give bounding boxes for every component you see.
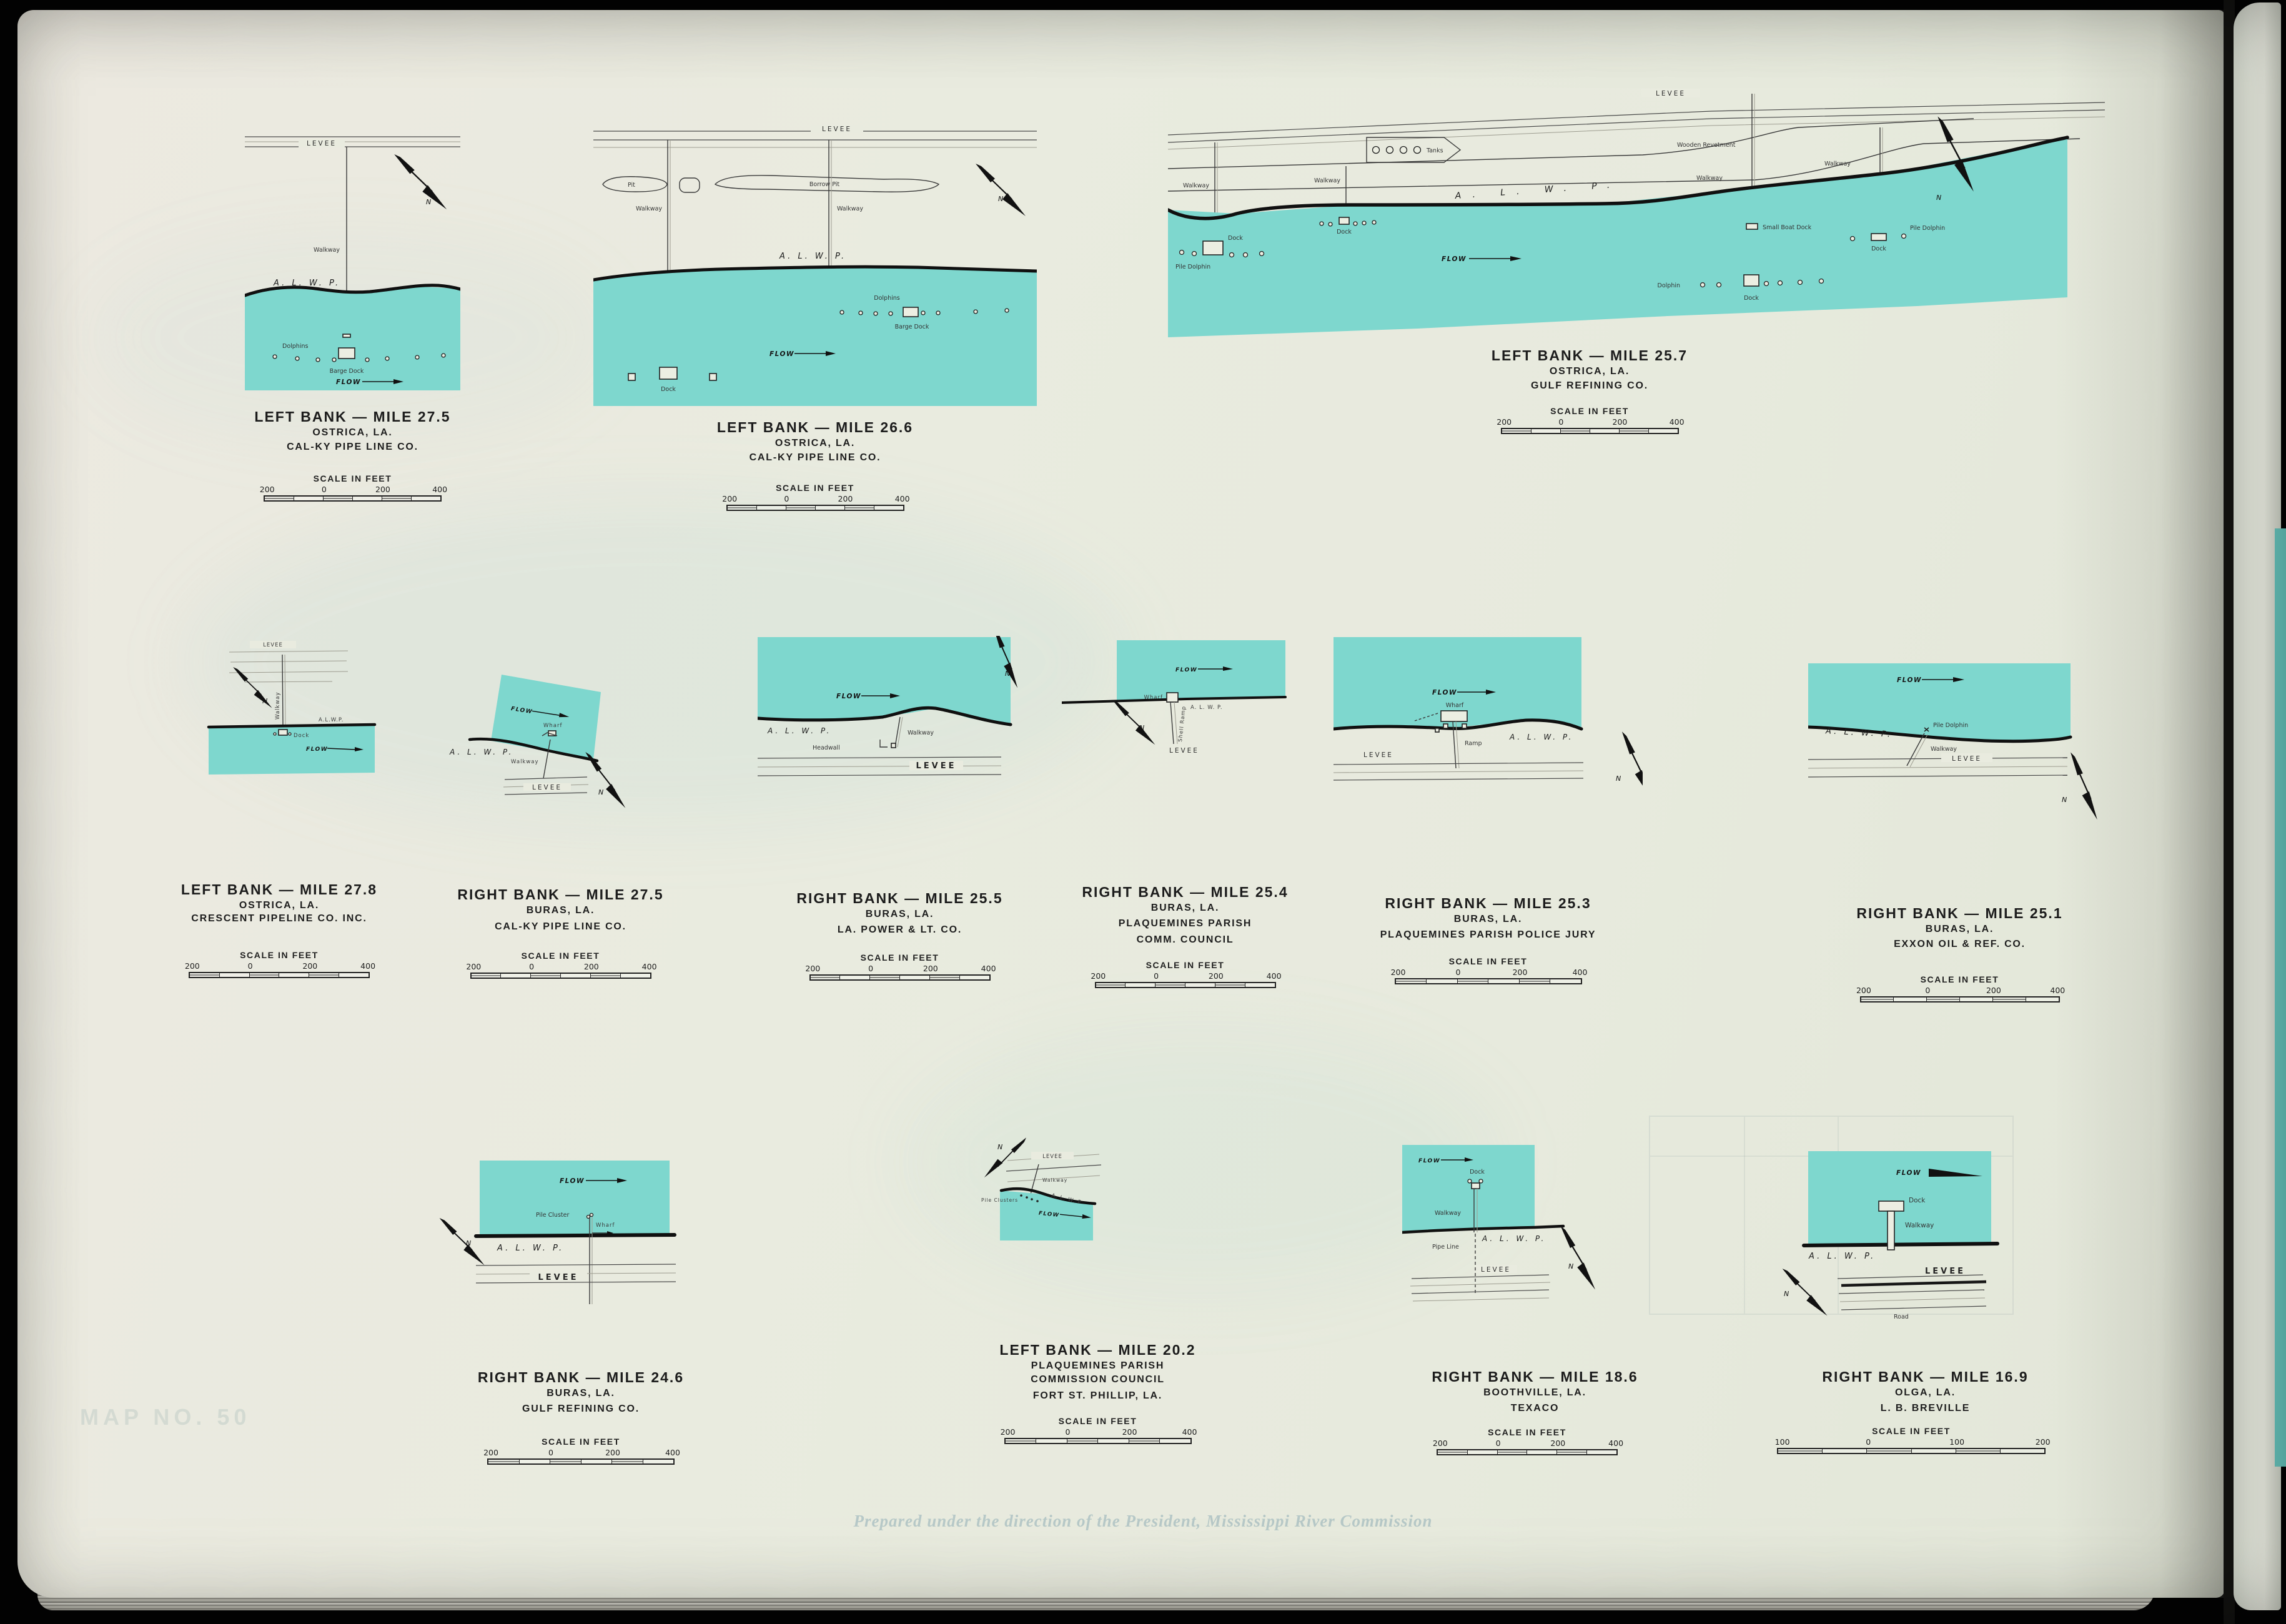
north-label: N (1139, 724, 1144, 732)
flow-label: FLOW (306, 746, 328, 753)
panel-right-bank-18-6: FLOW Dock Walkway A. L. W. P. Pipe Line … (1402, 1145, 1668, 1455)
water (1117, 640, 1285, 700)
map-drawing: LEVEE Walkway N A. L. W. P. Dolphins Bar… (245, 128, 460, 406)
map-drawing: FLOW Dock Walkway A. L. W. P. LEVEE Road… (1780, 1151, 2071, 1357)
shoreline-alwp (476, 1235, 675, 1236)
scale-block: SCALE IN FEET 2000 200400 (726, 483, 904, 511)
panel-title: RIGHT BANK — MILE 25.5 (758, 890, 1042, 906)
panel-subtitle: LA. POWER & LT. CO. (758, 924, 1042, 936)
scale-title: SCALE IN FEET (1095, 960, 1276, 970)
water (593, 267, 1037, 406)
scale-block: SCALE IN FEET 2000 200400 (1501, 406, 1679, 434)
panel-right-bank-27-5: FLOW Wharf Walkway A. L. W. P. LEVEE N R… (437, 661, 684, 979)
panel-title: RIGHT BANK — MILE 25.3 (1333, 895, 1643, 911)
north-arrow-icon (976, 164, 1026, 216)
alwp-label: A. L. W. P. (449, 748, 513, 756)
scale-block: SCALE IN FEET 2000 200400 (1095, 960, 1276, 988)
alwp-label: A. L. W. P. (779, 252, 846, 261)
panel-subtitle: EXXON OIL & REF. CO. (1808, 938, 2111, 951)
panel-title: RIGHT BANK — MILE 24.6 (437, 1369, 725, 1385)
flow-label: FLOW (1432, 689, 1457, 696)
scale-block: SCALE IN FEET 2000 200400 (809, 953, 991, 981)
dock-label: Dock (1337, 229, 1352, 235)
flow-label: FLOW (1418, 1158, 1440, 1164)
scale-block: SCALE IN FEET 2000 200400 (1395, 956, 1582, 984)
map-drawing: FLOW Pile Cluster Wharf A. L. W. P. LEVE… (437, 1161, 725, 1360)
dock (279, 730, 287, 735)
scale-title: SCALE IN FEET (1777, 1426, 2046, 1436)
map-drawing: FLOW Dock Walkway A. L. W. P. Pipe Line … (1402, 1145, 1668, 1364)
panel-title: RIGHT BANK — MILE 18.6 (1402, 1369, 1668, 1385)
alwp-label: A. L. W. P. (767, 726, 831, 735)
flow-label: FLOW (1442, 255, 1467, 263)
flow-label: FLOW (1175, 667, 1197, 673)
water (758, 637, 1011, 725)
panel-subtitle: COMMISSION COUNCIL (959, 1374, 1237, 1386)
dock-label: Dock (294, 733, 309, 739)
panel-subtitle: BOOTHVILLE, LA. (1402, 1387, 1668, 1399)
scale-bar (470, 973, 651, 979)
map-drawing: N LEVEE Walkway A. L. W. P Pile Clusters… (959, 1136, 1237, 1342)
panel-right-bank-24-6: FLOW Pile Cluster Wharf A. L. W. P. LEVE… (437, 1161, 725, 1465)
panel-right-bank-25-4: FLOW Wharf A. L. W. P. Shell Ramp N LEVE… (1062, 639, 1309, 988)
north-label: N (1784, 1290, 1789, 1298)
map-drawing: LEVEE Pit Borrow Pit Walkway Walkway N A… (593, 125, 1037, 409)
map-drawing: FLOW A. L. W. P. Pile Dolphin Walkway LE… (1808, 661, 2111, 870)
walkway-label: Walkway (636, 205, 662, 212)
dock-label: Dock (1744, 295, 1759, 302)
north-arrow-icon (394, 154, 447, 209)
levee-label: LEVEE (1925, 1267, 1966, 1276)
dock (1744, 275, 1759, 286)
pile-cluster-label: Pile Cluster (536, 1212, 569, 1219)
pile-dolphin-label: Pile Dolphin (1933, 722, 1968, 729)
panel-subtitle: PLAQUEMINES PARISH (959, 1360, 1237, 1372)
scale-title: SCALE IN FEET (1501, 406, 1679, 416)
alwp-label: A. L. W. P. (1190, 705, 1223, 711)
walkway-label: Walkway (1435, 1210, 1461, 1217)
walkway-label: Walkway (1042, 1177, 1067, 1183)
panel-title: LEFT BANK — MILE 25.7 (1483, 347, 1696, 364)
north-label: N (466, 1239, 471, 1247)
small-boat-dock (1746, 224, 1758, 229)
dolphins-label: Dolphins (282, 343, 308, 350)
panel-left-bank-20-2: N LEVEE Walkway A. L. W. P Pile Clusters… (959, 1136, 1237, 1444)
walkway-label: Walkway (837, 205, 863, 212)
north-label: N (598, 788, 603, 796)
next-page-edge (2234, 2, 2281, 1610)
book-edge-strip (2275, 528, 2286, 1467)
map-drawing: LEVEE Walkway N A.L.W.P. Dock FLOW (170, 638, 388, 873)
scale-labels: 2000 200400 (470, 962, 651, 973)
scale-bar (1095, 982, 1276, 988)
panel-title: RIGHT BANK — MILE 25.1 (1808, 905, 2111, 921)
wharf (1441, 711, 1467, 721)
scale-labels: 2000 200400 (264, 485, 442, 495)
scale-title: SCALE IN FEET (809, 953, 991, 963)
panel-right-bank-25-5: N FLOW A. L. W. P. Walkway Headwall LEVE… (758, 636, 1042, 981)
dock-label: Dock (1470, 1169, 1485, 1176)
walkway-label: Walkway (314, 247, 340, 254)
scale-title: SCALE IN FEET (726, 483, 904, 493)
scale-labels: 2000 200400 (1004, 1427, 1192, 1438)
alwp-label: A. L. W. P. (273, 279, 340, 288)
walkway-label: Walkway (908, 730, 934, 736)
north-arrow-icon (440, 1218, 485, 1265)
levee-label: LEVEE (822, 126, 852, 133)
road-label: Road (1894, 1314, 1909, 1320)
levee-label: LEVEE (538, 1273, 579, 1282)
alwp-label: A. L. W. P. (1454, 179, 1621, 201)
flow-label: FLOW (560, 1177, 585, 1185)
panel-title: LEFT BANK — MILE 20.2 (959, 1342, 1237, 1358)
scale-title: SCALE IN FEET (1860, 974, 2060, 984)
water (480, 1161, 670, 1234)
dock (1871, 234, 1886, 240)
scale-bar (1501, 428, 1679, 434)
panel-subtitle: GULF REFINING CO. (437, 1403, 725, 1415)
flow-label: FLOW (836, 693, 861, 700)
barge-dock (339, 348, 355, 359)
scale-block: SCALE IN FEET 1000 100200 (1777, 1426, 2046, 1454)
small-boat-dock-label: Small Boat Dock (1763, 224, 1812, 231)
scale-labels: 2000 200400 (1095, 971, 1276, 982)
panel-subtitle: TEXACO (1402, 1402, 1668, 1415)
panel-title: LEFT BANK — MILE 27.8 (170, 881, 388, 898)
map-drawing: FLOW Wharf Ramp A. L. W. P. LEVEE N (1333, 636, 1643, 864)
panel-subtitle: BURAS, LA. (1333, 913, 1643, 926)
map-drawing: FLOW Wharf A. L. W. P. Shell Ramp N LEVE… (1062, 639, 1309, 858)
walkway-label: Walkway (1183, 182, 1209, 189)
panel-subtitle: BURAS, LA. (1808, 923, 2111, 936)
panel-subtitle: OSTRICA, LA. (593, 437, 1037, 450)
panel-left-bank-26-6: LEVEE Pit Borrow Pit Walkway Walkway N A… (593, 125, 1037, 511)
levee-label: LEVEE (1169, 747, 1199, 755)
scale-title: SCALE IN FEET (264, 473, 442, 483)
levee-label: LEVEE (1656, 90, 1686, 97)
north-label: N (426, 198, 431, 206)
scale-labels: 2000 200400 (809, 964, 991, 974)
scale-labels: 2000 200400 (1437, 1438, 1618, 1449)
panel-subtitle: OSTRICA, LA. (1483, 365, 1696, 378)
wharf-label: Wharf (1144, 695, 1164, 701)
ramp-label: Ramp (1465, 740, 1482, 747)
wharf-label: Wharf (596, 1222, 615, 1229)
scale-block: SCALE IN FEET 2000 200400 (1437, 1427, 1618, 1455)
scale-labels: 2000 200400 (1860, 986, 2060, 996)
scale-bar (487, 1458, 675, 1465)
levee-label: LEVEE (1952, 755, 1982, 763)
panel-right-bank-16-9: FLOW Dock Walkway A. L. W. P. LEVEE Road… (1780, 1151, 2071, 1454)
panel-subtitle: CAL-KY PIPE LINE CO. (245, 441, 460, 453)
north-arrow-icon (984, 1137, 1026, 1177)
north-arrow-icon (1783, 1269, 1828, 1316)
pile-clusters-label: Pile Clusters (981, 1197, 1018, 1203)
north-arrow-icon (2051, 752, 2111, 819)
levee-label: LEVEE (307, 140, 337, 147)
alwp-label: A. L. W. P. (1509, 733, 1573, 741)
levee-label: LEVEE (1481, 1266, 1511, 1274)
scale-block: SCALE IN FEET 2000 200400 (264, 473, 442, 502)
north-arrow-icon (1604, 731, 1643, 798)
panel-right-bank-25-3: FLOW Wharf Ramp A. L. W. P. LEVEE N RIGH… (1333, 636, 1643, 984)
panel-subtitle: CRESCENT PIPELINE CO. INC. (170, 913, 388, 925)
panel-subtitle: OSTRICA, LA. (170, 899, 388, 912)
flow-label: FLOW (1896, 1169, 1921, 1177)
dolphin-label: Dolphin (1658, 282, 1680, 289)
scale-block: SCALE IN FEET 2000 200400 (470, 951, 651, 979)
alwp-label: A. L. W. P. (497, 1244, 564, 1253)
panel-left-bank-27-5: LEVEE Walkway N A. L. W. P. Dolphins Bar… (245, 128, 460, 502)
headwall-label: Headwall (813, 745, 840, 751)
dock (660, 367, 677, 379)
water (491, 675, 601, 760)
scale-block: SCALE IN FEET 2000 200400 (487, 1437, 675, 1465)
panel-subtitle: PLAQUEMINES PARISH (1062, 918, 1309, 930)
barge-dock-label: Barge Dock (330, 368, 364, 375)
walkway-label: Walkway (1314, 177, 1340, 184)
scale-labels: 2000 200400 (189, 961, 370, 972)
tanks-label: Tanks (1426, 147, 1443, 154)
dock (1203, 241, 1223, 255)
walkway-label: Walkway (1696, 175, 1723, 182)
scale-title: SCALE IN FEET (1437, 1427, 1618, 1437)
dolphins-label: Dolphins (874, 295, 899, 302)
north-label: N (998, 195, 1003, 203)
pile-dolphin-label: Pile Dolphin (1910, 225, 1945, 232)
scale-bar (1004, 1438, 1192, 1444)
scale-title: SCALE IN FEET (1004, 1416, 1192, 1426)
panel-title: RIGHT BANK — MILE 27.5 (437, 886, 684, 903)
north-label: N (262, 697, 267, 705)
north-label: N (1005, 670, 1010, 678)
panel-subtitle: COMM. COUNCIL (1062, 934, 1309, 946)
panel-subtitle: GULF REFINING CO. (1483, 380, 1696, 392)
dock-label: Dock (1228, 235, 1243, 242)
north-label: N (1616, 775, 1621, 783)
levee-label: LEVEE (916, 761, 957, 771)
panel-title: LEFT BANK — MILE 27.5 (245, 408, 460, 425)
walkway-label: Walkway (1931, 746, 1957, 753)
shoreline-alwp (1804, 1244, 1997, 1245)
alwp-label: A. L. W. P. (1808, 1252, 1876, 1261)
panel-left-bank-27-8: LEVEE Walkway N A.L.W.P. Dock FLOW LEFT … (170, 638, 388, 978)
levee-label: LEVEE (532, 784, 562, 791)
book-photo: MAP NO. 50 Prepared under the direction … (0, 0, 2286, 1624)
panel-subtitle: CAL-KY PIPE LINE CO. (593, 452, 1037, 464)
panel-title: LEFT BANK — MILE 26.6 (593, 419, 1037, 435)
walkway-label: Walkway (275, 691, 281, 720)
scale-title: SCALE IN FEET (1395, 956, 1582, 966)
wharf-label: Wharf (543, 723, 563, 729)
scale-bar (189, 972, 370, 978)
water (1808, 1151, 1991, 1244)
dock (1879, 1201, 1904, 1211)
scale-bar (1437, 1449, 1618, 1455)
scale-bar (1395, 978, 1582, 984)
panel-left-bank-25-7: LEVEE Wooden Revetment Tanks Walkway Wal… (1168, 86, 2105, 352)
levee-label: LEVEE (1042, 1154, 1062, 1160)
dock-label: Dock (1871, 245, 1886, 252)
pipe-line-label: Pipe Line (1432, 1244, 1459, 1250)
scale-labels: 2000 200400 (1395, 968, 1582, 978)
scale-bar (1777, 1448, 2046, 1454)
map-drawing: LEVEE Wooden Revetment Tanks Walkway Wal… (1168, 86, 2105, 352)
wooden-revetment-label: Wooden Revetment (1677, 142, 1736, 149)
north-label: N (997, 1143, 1002, 1151)
panel-subtitle: FORT ST. PHILLIP, LA. (959, 1390, 1237, 1402)
wharf (1167, 693, 1178, 702)
north-arrow-icon (578, 752, 632, 808)
panel-right-bank-25-1: FLOW A. L. W. P. Pile Dolphin Walkway LE… (1808, 661, 2111, 1003)
scale-labels: 2000 200400 (487, 1448, 675, 1458)
panel-subtitle: BURAS, LA. (758, 908, 1042, 921)
panel-subtitle: BURAS, LA. (1062, 902, 1309, 914)
scale-labels: 2000 200400 (726, 494, 904, 505)
north-label: N (2062, 796, 2067, 804)
headwall-outline (880, 740, 888, 747)
scale-bar (1860, 996, 2060, 1003)
pile-dolphin-label: Pile Dolphin (1175, 264, 1210, 270)
levee-label: LEVEE (1363, 751, 1393, 759)
walkway-label: Walkway (1824, 161, 1851, 167)
panel-subtitle: BURAS, LA. (437, 904, 684, 917)
dock-label: Dock (1909, 1197, 1926, 1204)
pit-label: Pit (628, 182, 635, 189)
flow-label: FLOW (336, 379, 361, 386)
barge-dock-label: Barge Dock (895, 324, 929, 330)
shell-ramp-label: Shell Ramp (1177, 706, 1187, 743)
dock-label: Dock (661, 386, 676, 393)
scale-labels: 2000 200400 (1501, 417, 1679, 428)
north-arrow-icon (1547, 1226, 1609, 1290)
north-label: N (1568, 1262, 1573, 1270)
dock (1472, 1183, 1480, 1189)
panel-title: RIGHT BANK — MILE 16.9 (1780, 1369, 2071, 1385)
levee-label: LEVEE (263, 642, 283, 648)
scale-title: SCALE IN FEET (470, 951, 651, 961)
panel-subtitle: CAL-KY PIPE LINE CO. (437, 921, 684, 933)
scale-labels: 1000 100200 (1777, 1437, 2046, 1448)
north-label: N (1936, 194, 1941, 202)
borrow-pit-label: Borrow Pit (809, 181, 840, 188)
panel-subtitle: L. B. BREVILLE (1780, 1402, 2071, 1415)
panel-subtitle: OLGA, LA. (1780, 1387, 2071, 1399)
scale-title: SCALE IN FEET (189, 950, 370, 960)
map-drawing: FLOW Wharf Walkway A. L. W. P. LEVEE N (437, 661, 684, 870)
alwp-label: A.L.W.P. (319, 717, 344, 723)
scale-title: SCALE IN FEET (487, 1437, 675, 1447)
wharf-label: Wharf (1446, 702, 1464, 709)
panel-subtitle: PLAQUEMINES PARISH POLICE JURY (1333, 929, 1643, 941)
scale-block: SCALE IN FEET 2000 200400 (1860, 974, 2060, 1003)
panel-subtitle: BURAS, LA. (437, 1387, 725, 1400)
alwp-label: A. L. W. P. (1482, 1234, 1546, 1243)
panel-subtitle: OSTRICA, LA. (245, 427, 460, 439)
scale-bar (809, 974, 991, 981)
scale-bar (726, 505, 904, 511)
north-arrow-icon (1112, 700, 1155, 745)
scale-block: SCALE IN FEET 2000 200400 (1004, 1416, 1192, 1444)
map-drawing: N FLOW A. L. W. P. Walkway Headwall LEVE… (758, 636, 1042, 858)
panel-title: RIGHT BANK — MILE 25.4 (1062, 884, 1309, 900)
dock-walkway (1888, 1211, 1894, 1250)
walkway-label: Walkway (1905, 1222, 1934, 1229)
flow-label: FLOW (1897, 676, 1922, 684)
flow-label: FLOW (769, 350, 794, 358)
scale-block: SCALE IN FEET 2000 200400 (189, 950, 370, 978)
dock (1339, 217, 1349, 224)
scale-bar (264, 495, 442, 502)
walkway-label: Walkway (511, 759, 539, 765)
barge-dock (903, 307, 918, 317)
